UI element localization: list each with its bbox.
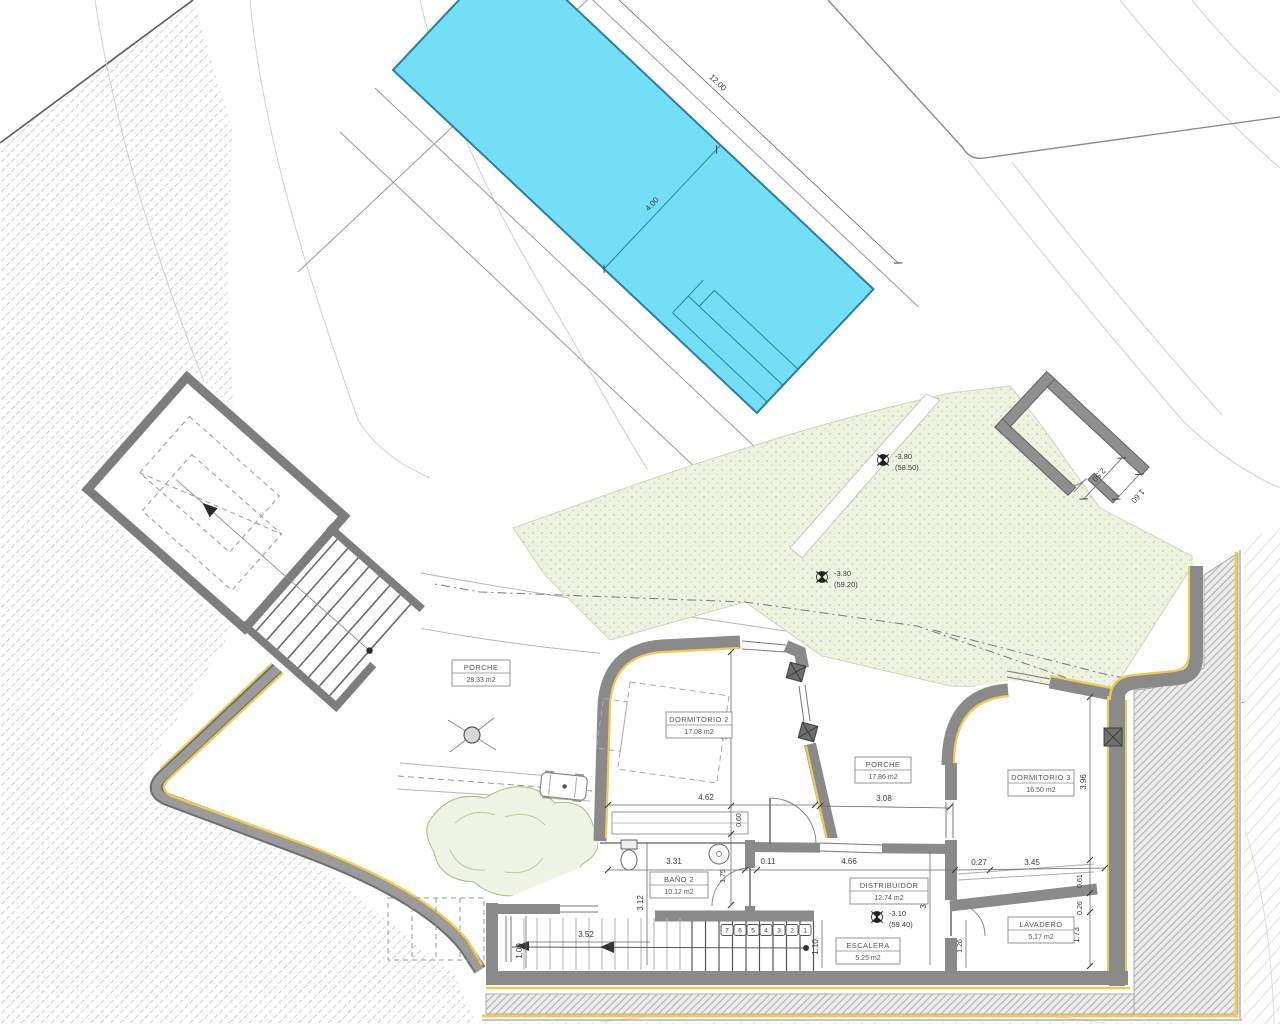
room-name: DORMITORIO 3: [1011, 773, 1071, 782]
room-label-porche1: PORCHE 28.33 m2: [452, 660, 510, 686]
room-label-dorm2: DORMITORIO 2 17.08 m2: [666, 712, 732, 738]
drain-symbol: [448, 718, 496, 752]
level-value: -3.10: [889, 909, 906, 918]
dim-bano2-door-depth: 1.75: [720, 869, 727, 883]
level-value: -3.80: [895, 452, 912, 461]
dim-annex-opening: 1.60: [1129, 487, 1147, 505]
sink: [709, 844, 729, 864]
room-name: ESCALERA: [846, 941, 889, 950]
room-label-dorm3: DORMITORIO 3 16.50 m2: [1008, 770, 1074, 796]
dim-dorm2-width: 4.62: [698, 793, 714, 802]
room-area: 16.50 m2: [1026, 787, 1055, 794]
swimming-pool: 12.00 4.00: [282, 0, 939, 446]
pillar-3: [1104, 728, 1122, 746]
room-name: DORMITORIO 2: [669, 715, 729, 724]
floor-plan-drawing: 12.00 4.00: [0, 0, 1280, 1024]
car-symbol: [539, 770, 588, 803]
level-datum: (59.40): [889, 920, 913, 929]
pool-basin: [393, 0, 873, 413]
dim-bano2-width: 3.31: [666, 857, 682, 866]
level-value: -3.30: [834, 569, 851, 578]
dim-dorm3-height: 3.96: [1079, 774, 1088, 790]
room-area: 17.86 m2: [868, 774, 897, 781]
step-number: 3: [777, 928, 781, 935]
room-name: DISTRIBUIDOR: [860, 881, 919, 890]
dim-lavadero-ledge: 0.26: [1077, 901, 1084, 915]
room-label-porche2: PORCHE 17.86 m2: [855, 757, 911, 783]
room-label-escalera: ESCALERA 5.25 m2: [836, 938, 900, 964]
dim-distribuidor-width: 4.66: [841, 857, 857, 866]
dim-porche2-width: 3.08: [876, 794, 892, 803]
step-number: 6: [738, 928, 742, 935]
step-number: 7: [725, 928, 729, 935]
dim-pool-length: 12.00: [707, 73, 728, 94]
pillar-2: [798, 722, 818, 742]
step-numbers: 7 6 5 4 3 2 1: [721, 925, 811, 936]
room-label-bano2: BAÑO 2 10.12 m2: [650, 872, 708, 898]
room-area: 5,17 m2: [1028, 934, 1053, 941]
level-datum: (59.20): [834, 580, 858, 589]
dim-lavadero-width: 3.45: [1024, 858, 1040, 867]
dim-dorm2-sill: 0.60: [736, 813, 743, 827]
room-area: 5.25 m2: [855, 955, 880, 962]
step-number: 2: [790, 928, 794, 935]
room-area: 17.08 m2: [684, 729, 713, 736]
step-number: 1: [803, 928, 807, 935]
room-name: PORCHE: [866, 760, 901, 769]
level-datum: (58.50): [895, 463, 919, 472]
room-area: 12.74 m2: [874, 895, 903, 902]
room-name: PORCHE: [464, 663, 499, 672]
floor-plan-canvas: 12.00 4.00: [0, 0, 1280, 1024]
dim-stair-width: 1.10: [811, 939, 820, 955]
room-label-distribuidor: DISTRIBUIDOR 12.74 m2: [850, 878, 928, 904]
dim-lavadero-jog: 0.27: [971, 858, 987, 867]
dim-lavadero-door: 1.26: [957, 939, 964, 953]
bottom-band: [486, 994, 1134, 1014]
step-number: 4: [764, 928, 768, 935]
dim-bano2-height: 3.12: [636, 895, 645, 911]
room-label-lavadero: LAVADERO 5,17 m2: [1008, 917, 1074, 943]
pillar-1: [786, 662, 806, 682]
dim-lavadero-step: 0.61: [1077, 874, 1084, 888]
dim-entry-depth: 1.09: [515, 943, 524, 959]
step-number: 5: [751, 928, 755, 935]
room-area: 10.12 m2: [664, 889, 693, 896]
toilet: [621, 840, 637, 870]
room-name: BAÑO 2: [664, 875, 694, 884]
room-name: LAVADERO: [1020, 920, 1063, 929]
room-area: 28.33 m2: [466, 677, 495, 684]
dim-wall-jog: 0.11: [761, 857, 777, 866]
dim-entry-width: 3.52: [578, 930, 594, 939]
